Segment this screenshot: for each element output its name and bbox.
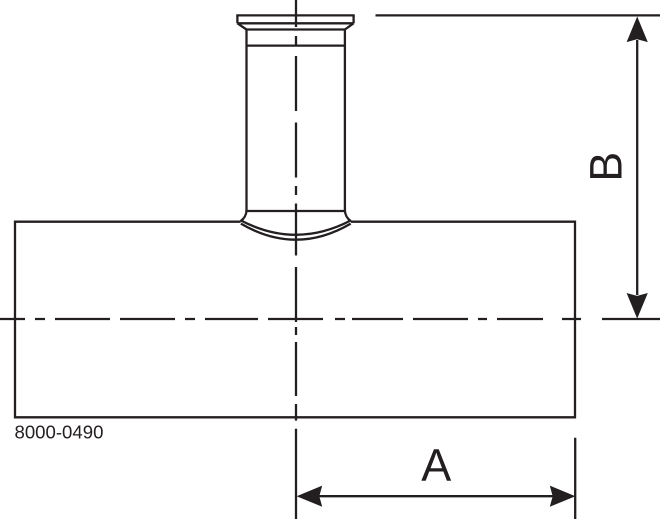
svg-text:8000-0490: 8000-0490 [15, 422, 104, 443]
svg-text:B: B [581, 152, 632, 182]
svg-text:A: A [421, 440, 451, 491]
